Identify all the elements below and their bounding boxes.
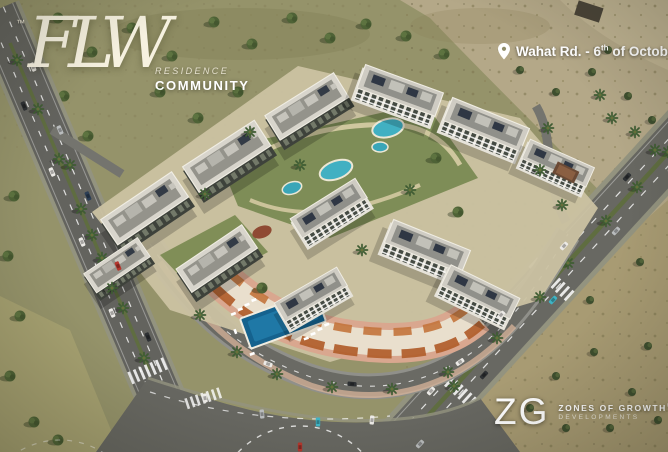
developer-subtitle: DEVELOPMENTS bbox=[558, 414, 668, 421]
tagline-residence: RESIDENCE bbox=[155, 66, 250, 76]
flw-logo-text: FLW bbox=[28, 10, 164, 77]
location-badge: Wahat Rd. - 6th of October bbox=[498, 43, 668, 60]
trademark-symbol: ™ bbox=[16, 18, 25, 28]
logo-tagline: RESIDENCE COMMUNITY bbox=[155, 66, 250, 93]
developer-name: ZONES OF GROWTH® bbox=[558, 403, 668, 413]
location-pin-icon bbox=[498, 43, 510, 60]
developer-badge: ZG ZONES OF GROWTH® DEVELOPMENTS bbox=[494, 396, 668, 427]
flw-logo: ™ FLW RESIDENCE COMMUNITY bbox=[28, 10, 164, 77]
aerial-render: ™ FLW RESIDENCE COMMUNITY Wahat Rd. - 6t… bbox=[0, 0, 668, 452]
tagline-community: COMMUNITY bbox=[155, 78, 250, 93]
location-text: Wahat Rd. - 6th of October bbox=[516, 44, 668, 59]
zg-logo-text: ZG bbox=[494, 396, 549, 427]
developer-name-block: ZONES OF GROWTH® DEVELOPMENTS bbox=[558, 403, 668, 421]
